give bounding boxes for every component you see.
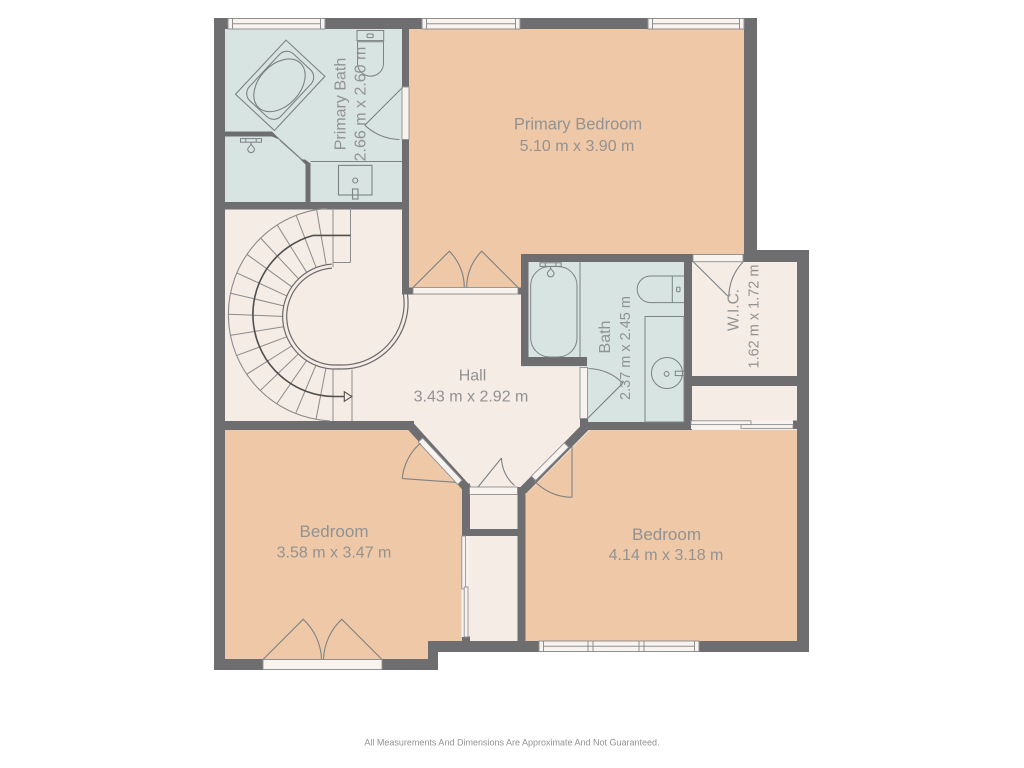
svg-text:3.58 m x 3.47 m: 3.58 m x 3.47 m: [277, 545, 392, 562]
svg-text:Hall: Hall: [459, 367, 487, 384]
svg-text:Primary Bath: Primary Bath: [333, 58, 350, 150]
svg-text:Bedroom: Bedroom: [632, 525, 701, 544]
svg-text:3.43 m x 2.92 m: 3.43 m x 2.92 m: [414, 389, 529, 406]
svg-text:2.66 m x 2.60 m: 2.66 m x 2.60 m: [353, 47, 370, 162]
svg-text:2.37 m x 2.45 m: 2.37 m x 2.45 m: [618, 296, 634, 400]
svg-text:5.10 m x 3.90 m: 5.10 m x 3.90 m: [520, 138, 635, 155]
svg-text:Bath: Bath: [597, 321, 614, 354]
svg-text:Primary Bedroom: Primary Bedroom: [514, 116, 642, 134]
svg-text:W.I.C.: W.I.C.: [725, 289, 742, 331]
svg-text:4.14 m x 3.18 m: 4.14 m x 3.18 m: [609, 547, 724, 564]
svg-text:Bedroom: Bedroom: [300, 522, 369, 541]
svg-text:All Measurements And Dimension: All Measurements And Dimensions Are Appr…: [364, 738, 659, 748]
svg-text:1.62 m x 1.72 m: 1.62 m x 1.72 m: [746, 265, 762, 369]
